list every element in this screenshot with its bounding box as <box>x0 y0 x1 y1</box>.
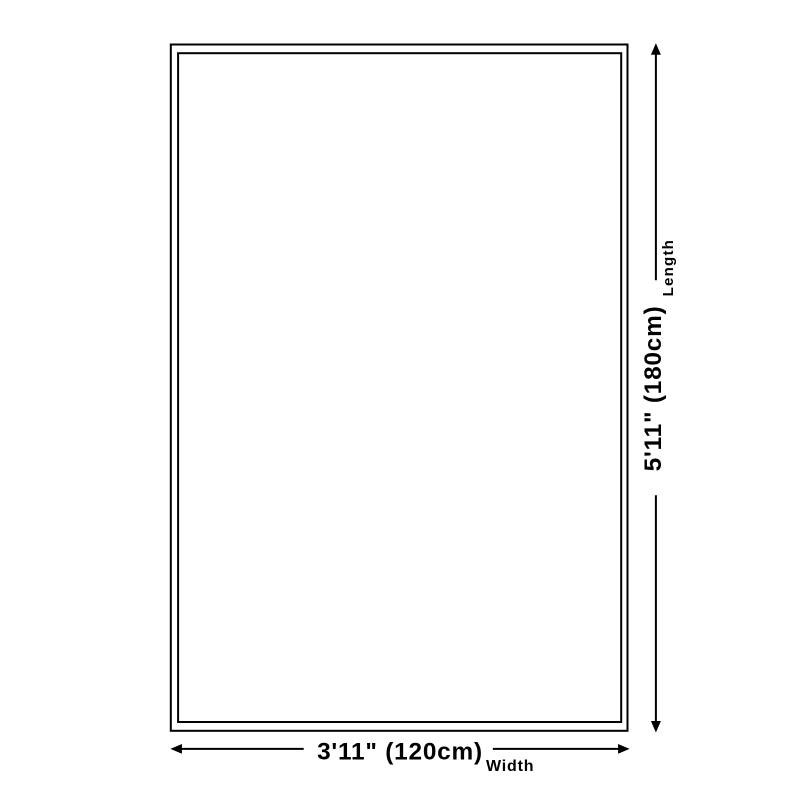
svg-text:3'11" (120cm): 3'11" (120cm) <box>317 739 483 766</box>
svg-text:Length: Length <box>660 239 677 297</box>
svg-text:Width: Width <box>486 758 534 775</box>
svg-text:5'11" (180cm): 5'11" (180cm) <box>640 305 667 471</box>
